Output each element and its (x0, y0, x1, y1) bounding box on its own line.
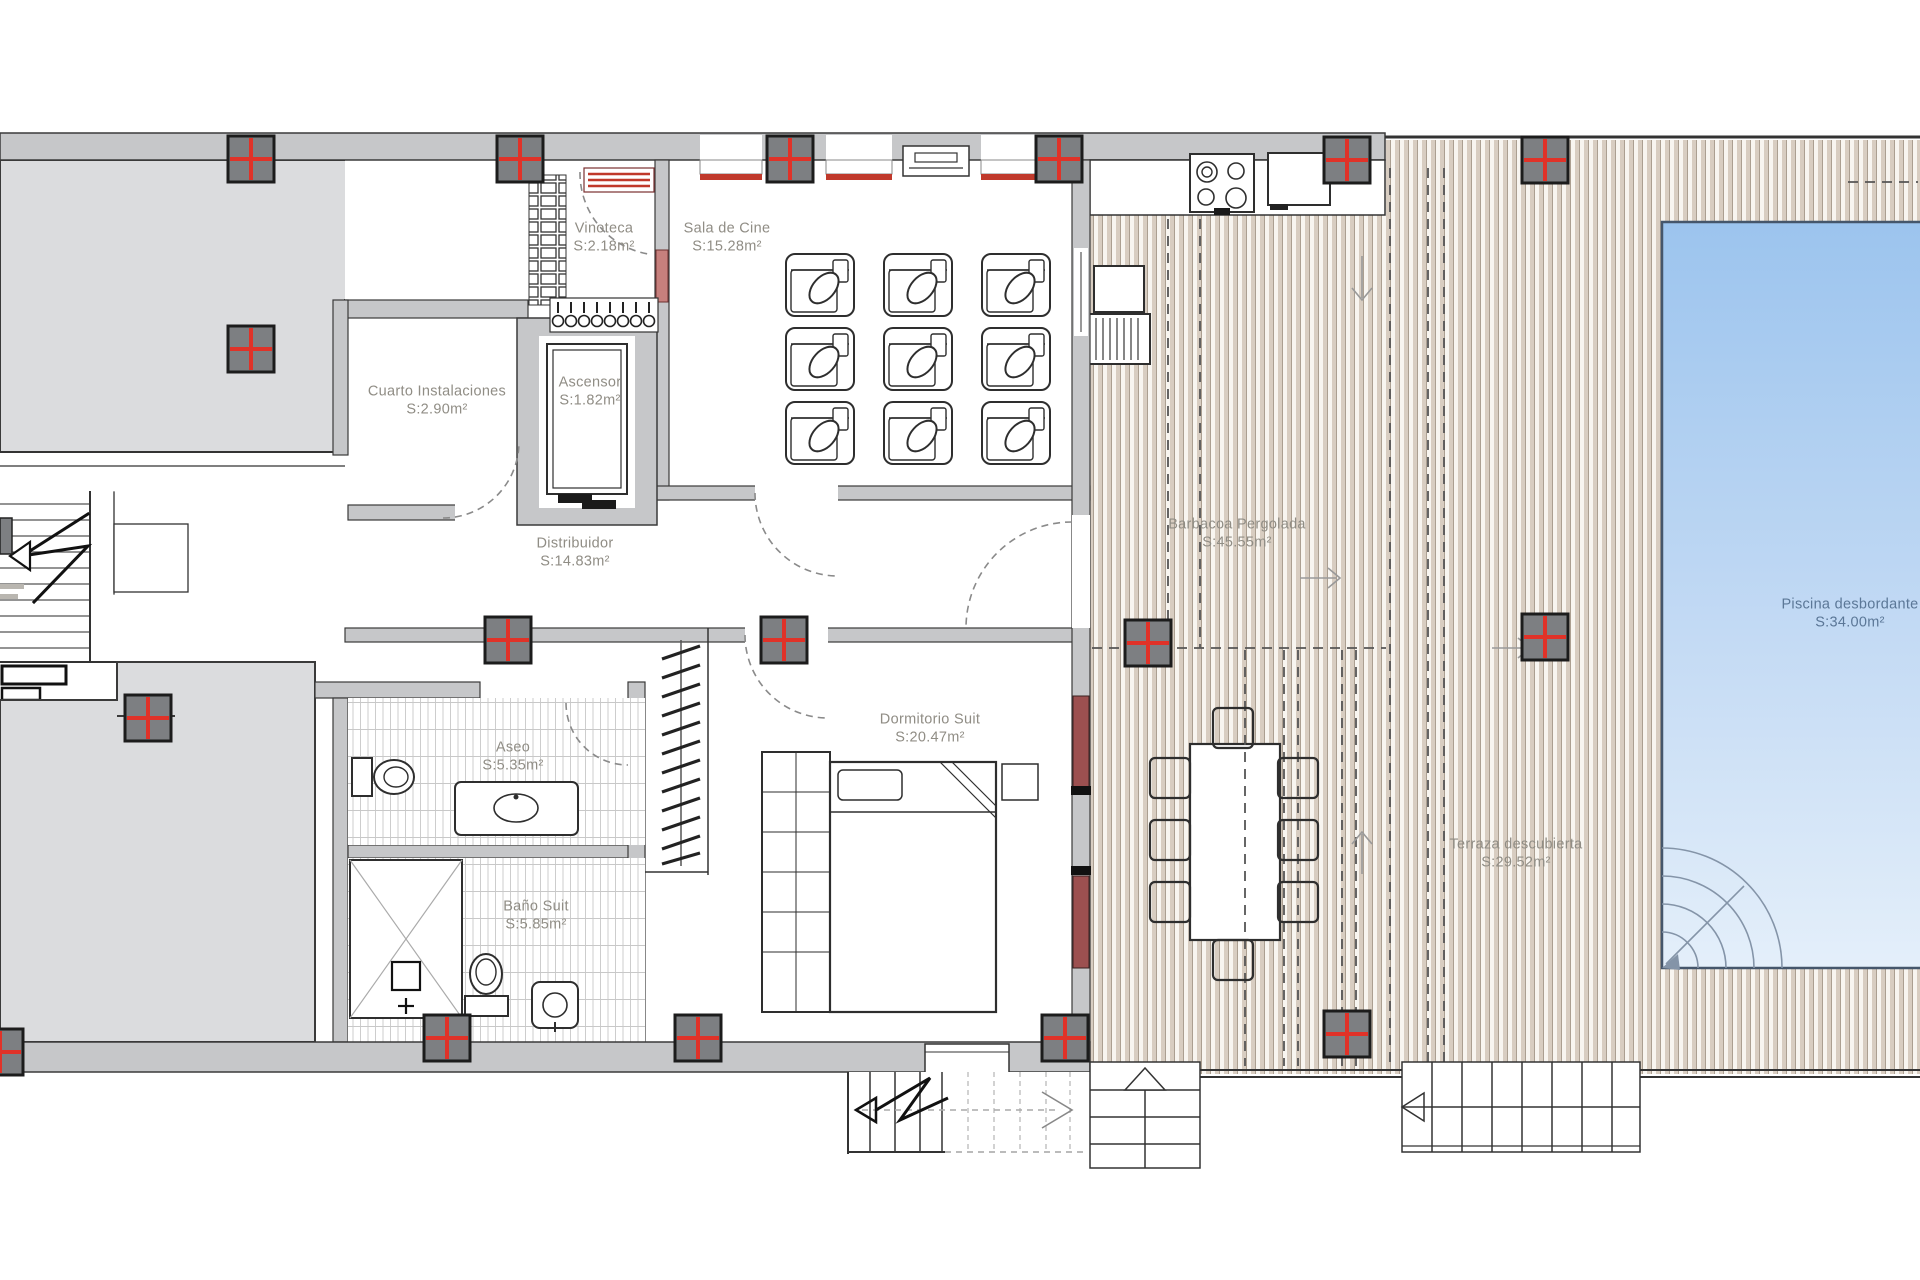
staircase-right (1402, 1062, 1640, 1152)
cinema-seats (786, 254, 1050, 464)
door-step (925, 1044, 1009, 1074)
cooktop (1190, 154, 1254, 215)
grill-appliance (1088, 266, 1150, 364)
vent-box (903, 146, 969, 176)
bathroom-bano (348, 858, 645, 1042)
shower (350, 860, 462, 1018)
sink (1268, 153, 1330, 205)
sink (532, 982, 578, 1032)
wine-rack (529, 175, 566, 305)
radiator-red (826, 174, 892, 180)
toilet (352, 758, 414, 796)
pool (1662, 222, 1920, 970)
pillow (838, 770, 902, 800)
bed (762, 752, 1038, 1012)
dining-table (1190, 744, 1280, 940)
radiator-red (700, 174, 762, 180)
staircase-up (1090, 1062, 1200, 1168)
windows (700, 135, 1047, 180)
bottle-shelf (550, 298, 658, 332)
floor-plan: Vinoteca S:2.18m² Sala de Cine S:15.28m²… (0, 0, 1920, 1280)
staircase-center (848, 1072, 1090, 1154)
vanity (455, 782, 578, 835)
bathroom-aseo (348, 698, 645, 845)
nightstand (1002, 764, 1038, 800)
elevator (517, 318, 657, 525)
red-shelf (584, 168, 654, 192)
floor-plan-drawing (0, 0, 1920, 1280)
